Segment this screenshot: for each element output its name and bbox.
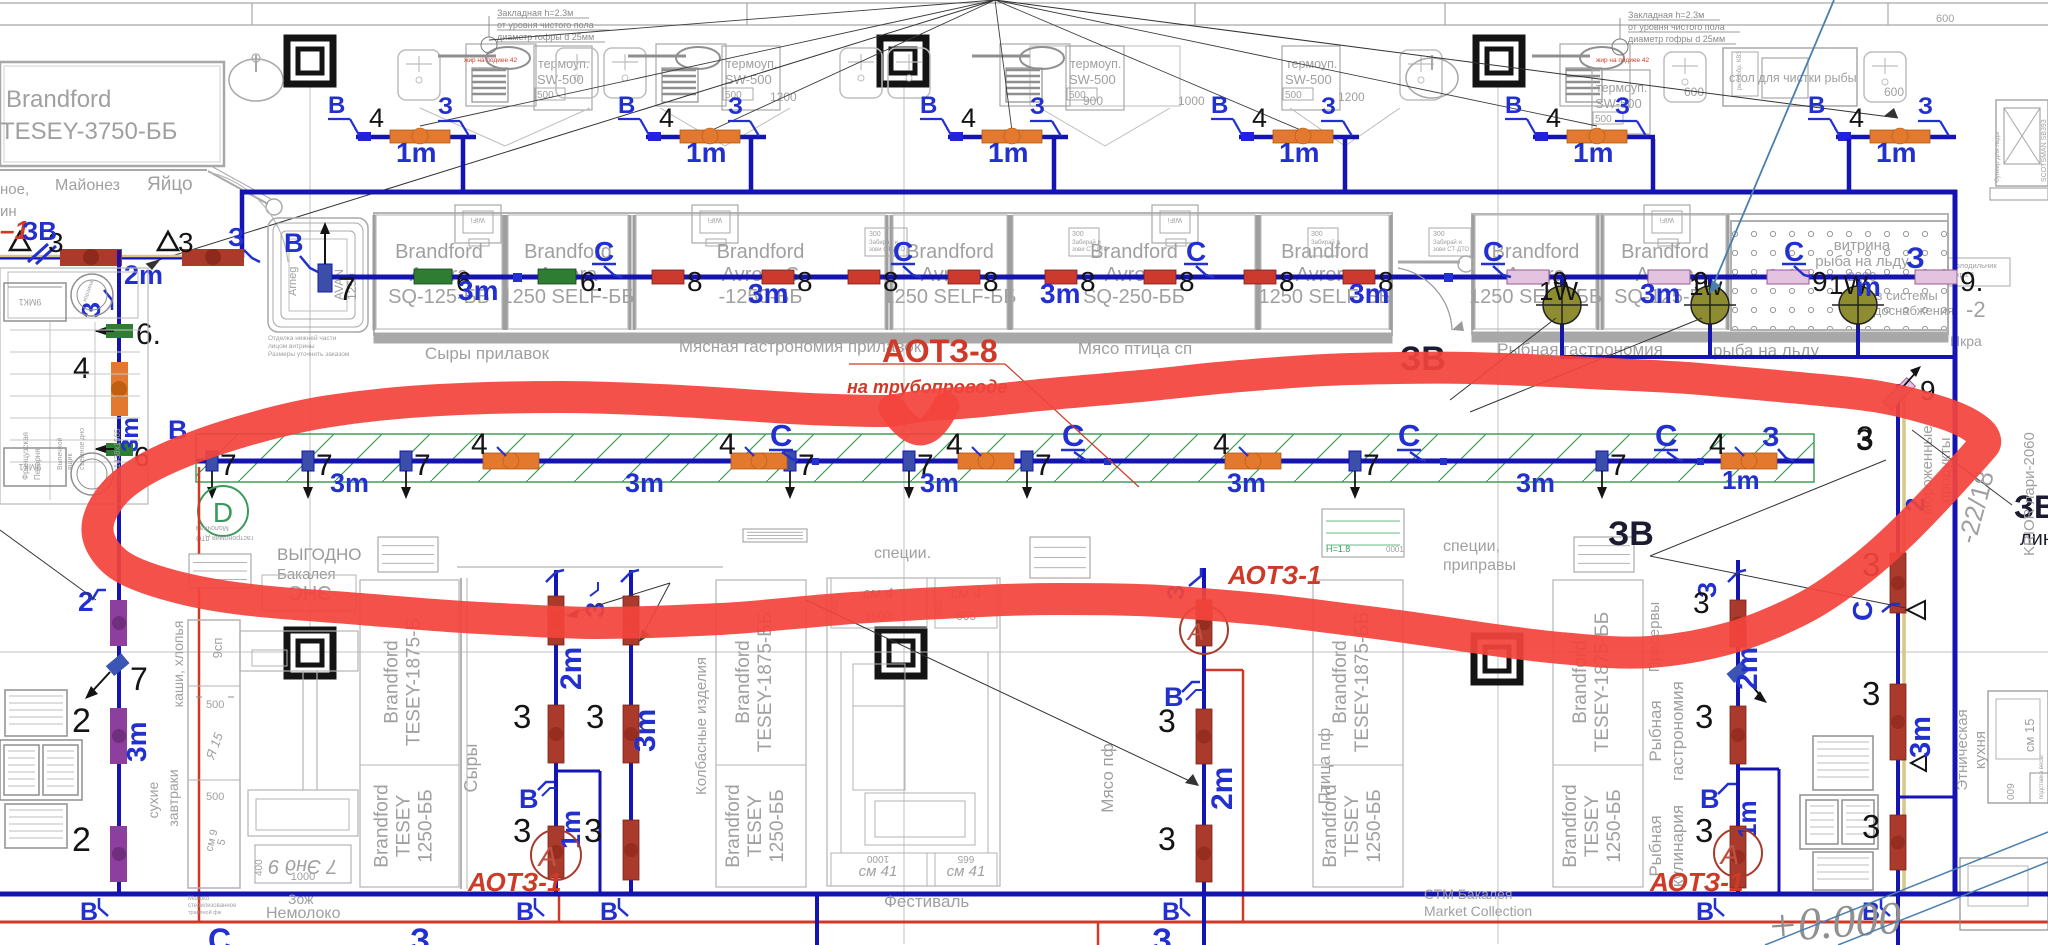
svg-text:диаметр гофры d 25мм: диаметр гофры d 25мм xyxy=(497,32,594,42)
svg-text:каши, хлопья: каши, хлопья xyxy=(170,621,186,708)
svg-text:см 41: см 41 xyxy=(859,863,898,880)
svg-text:3: 3 xyxy=(584,812,602,849)
svg-text:З: З xyxy=(1762,421,1780,452)
svg-text:1000: 1000 xyxy=(1178,94,1205,108)
svg-text:300: 300 xyxy=(1433,231,1445,238)
svg-text:8: 8 xyxy=(687,266,703,297)
svg-text:лицом витрины: лицом витрины xyxy=(268,343,315,350)
svg-text:009: 009 xyxy=(2006,783,2017,800)
svg-text:7: 7 xyxy=(1610,449,1627,482)
svg-text:Этническая: Этническая xyxy=(1954,709,1971,790)
svg-text:З: З xyxy=(1152,922,1172,945)
svg-text:TESEY: TESEY xyxy=(1342,795,1363,858)
svg-text:В: В xyxy=(1696,898,1714,926)
svg-text:А: А xyxy=(1719,839,1740,870)
svg-text:7: 7 xyxy=(1363,449,1380,482)
svg-text:1W: 1W xyxy=(1539,276,1578,306)
svg-text:400: 400 xyxy=(254,859,265,876)
svg-text:2m: 2m xyxy=(124,260,163,290)
svg-text:500: 500 xyxy=(1069,90,1086,101)
svg-text:З: З xyxy=(728,93,743,120)
svg-text:500: 500 xyxy=(206,699,224,711)
svg-text:ВЫГОДНО: ВЫГОДНО xyxy=(277,545,362,564)
svg-text:SW-500: SW-500 xyxy=(725,72,772,87)
svg-text:5: 5 xyxy=(215,838,228,847)
svg-text:TESEY: TESEY xyxy=(1582,795,1603,858)
svg-text:1m: 1m xyxy=(1876,137,1916,168)
svg-text:З: З xyxy=(1321,93,1336,120)
svg-text:Brandford: Brandford xyxy=(906,241,994,263)
svg-text:TESEY-3750-ББ: TESEY-3750-ББ xyxy=(0,118,177,145)
svg-text:3: 3 xyxy=(1158,821,1176,857)
svg-text:D: D xyxy=(213,497,233,528)
svg-text:диаметр гофры d 25мм: диаметр гофры d 25мм xyxy=(1628,34,1725,44)
svg-text:2m: 2m xyxy=(1206,767,1239,810)
svg-text:SQ-250-ББ: SQ-250-ББ xyxy=(1083,286,1185,308)
svg-text:TESEY-1875-ББ: TESEY-1875-ББ xyxy=(755,612,776,752)
svg-text:З: З xyxy=(1918,93,1933,120)
svg-text:3m: 3m xyxy=(1516,468,1555,498)
svg-text:Я 15: Я 15 xyxy=(202,730,226,762)
svg-text:термоуп.: термоуп. xyxy=(726,57,777,71)
svg-text:съемное дно: съемное дно xyxy=(79,428,86,470)
svg-text:Забирай и: Забирай и xyxy=(1433,239,1462,246)
svg-text:корзина: корзина xyxy=(82,279,95,302)
svg-text:С: С xyxy=(893,236,913,267)
svg-text:СТМ Бакалея: СТМ Бакалея xyxy=(1424,886,1512,902)
svg-text:3: 3 xyxy=(178,227,194,258)
svg-text:1m: 1m xyxy=(1573,137,1613,168)
svg-text:SW-500: SW-500 xyxy=(537,72,584,87)
svg-text:Сыры прилавок: Сыры прилавок xyxy=(425,344,550,363)
svg-text:Сыры: Сыры xyxy=(461,744,481,793)
svg-text:1m: 1m xyxy=(1722,465,1760,495)
svg-text:9сп: 9сп xyxy=(210,638,225,659)
svg-text:В: В xyxy=(1808,92,1825,119)
svg-text:В: В xyxy=(618,92,635,119)
svg-text:3: 3 xyxy=(586,698,604,735)
svg-text:4: 4 xyxy=(961,103,976,133)
svg-text:4: 4 xyxy=(1546,103,1561,133)
svg-text:В: В xyxy=(1700,784,1720,814)
svg-text:3: 3 xyxy=(1695,698,1713,735)
svg-text:З: З xyxy=(228,222,244,252)
svg-text:3: 3 xyxy=(1695,812,1713,849)
svg-text:Мясо птица сп: Мясо птица сп xyxy=(1078,339,1192,358)
svg-text:1m: 1m xyxy=(686,137,726,168)
svg-text:WiFi: WiFi xyxy=(1168,216,1182,223)
svg-text:С: С xyxy=(1483,236,1503,267)
svg-text:ное,: ное, xyxy=(0,181,29,198)
svg-text:500: 500 xyxy=(1595,114,1612,125)
svg-text:2m: 2m xyxy=(555,647,588,690)
svg-text:1000: 1000 xyxy=(866,853,889,864)
svg-text:3m: 3m xyxy=(1227,468,1266,498)
svg-text:4: 4 xyxy=(369,103,384,133)
svg-text:В: В xyxy=(519,784,539,814)
svg-text:В: В xyxy=(80,898,98,926)
svg-text:Brandford: Brandford xyxy=(395,241,483,263)
svg-text:Забирай и: Забирай и xyxy=(1311,239,1340,246)
svg-text:Фестиваль: Фестиваль xyxy=(884,892,969,911)
svg-text:7: 7 xyxy=(338,271,356,307)
svg-text:300: 300 xyxy=(1072,231,1084,238)
svg-text:см 15: см 15 xyxy=(2022,718,2037,752)
svg-text:Закладная h=2.3м: Закладная h=2.3м xyxy=(1628,10,1704,20)
svg-text:500: 500 xyxy=(206,791,224,803)
svg-text:7: 7 xyxy=(798,449,815,482)
svg-text:стол для чистки рыбы: стол для чистки рыбы xyxy=(1729,71,1857,85)
svg-text:Молоко: Молоко xyxy=(188,896,210,902)
svg-text:В: В xyxy=(920,92,937,119)
svg-text:4: 4 xyxy=(73,352,90,385)
svg-text:травяной фж: травяной фж xyxy=(188,909,222,916)
svg-text:В: В xyxy=(328,92,345,119)
svg-text:2m: 2m xyxy=(1731,647,1764,690)
svg-text:Arneg: Arneg xyxy=(287,267,299,296)
svg-text:300: 300 xyxy=(869,231,881,238)
svg-text:3m: 3m xyxy=(458,275,498,306)
svg-text:Market Collection: Market Collection xyxy=(1424,903,1532,919)
svg-text:8: 8 xyxy=(883,266,899,297)
svg-text:от уровня чистого пола: от уровня чистого пола xyxy=(1628,22,1725,32)
svg-text:1250-ББ: 1250-ББ xyxy=(767,789,788,863)
svg-text:С: С xyxy=(208,922,231,945)
svg-text:Brandford: Brandford xyxy=(723,784,744,867)
svg-text:1m: 1m xyxy=(1279,137,1319,168)
svg-text:TESEY-1875-Б: TESEY-1875-Б xyxy=(404,618,425,746)
svg-text:гастрономия ДТО: гастрономия ДТО xyxy=(195,534,253,541)
svg-text:З: З xyxy=(1615,93,1630,120)
svg-text:Рыбная: Рыбная xyxy=(1646,700,1665,761)
svg-text:В: В xyxy=(600,898,618,926)
svg-text:9МК1: 9МК1 xyxy=(19,462,42,472)
svg-text:кухня: кухня xyxy=(1972,731,1989,769)
svg-text:сухие: сухие xyxy=(145,781,161,818)
svg-text:8: 8 xyxy=(1279,266,1295,297)
svg-text:WiFi: WiFi xyxy=(1660,216,1674,223)
svg-text:ЗВ: ЗВ xyxy=(1608,515,1654,553)
svg-text:витрина: витрина xyxy=(1834,237,1891,254)
svg-text:зови СТ-ДТО: зови СТ-ДТО xyxy=(1433,247,1469,253)
svg-text:В: В xyxy=(1505,92,1522,119)
svg-text:H=1.8: H=1.8 xyxy=(1326,544,1350,554)
svg-text:гастрономия: гастрономия xyxy=(1668,681,1687,781)
svg-text:6.: 6. xyxy=(580,266,603,297)
svg-text:TESEY: TESEY xyxy=(745,795,766,858)
svg-text:специи,: специи, xyxy=(1443,538,1500,555)
svg-text:8: 8 xyxy=(1179,266,1195,297)
svg-text:4: 4 xyxy=(1252,103,1267,133)
svg-text:WiFi: WiFi xyxy=(708,216,722,223)
svg-text:500: 500 xyxy=(1285,90,1302,101)
svg-text:3: 3 xyxy=(1856,420,1874,456)
svg-text:рыба на льду: рыба на льду xyxy=(1815,253,1909,270)
svg-text:З: З xyxy=(1030,93,1045,120)
svg-text:В: В xyxy=(284,228,304,258)
svg-text:SW-500: SW-500 xyxy=(1069,72,1116,87)
svg-text:3m: 3m xyxy=(625,468,664,498)
svg-text:2: 2 xyxy=(72,821,91,859)
svg-text:TESEY: TESEY xyxy=(394,795,415,858)
svg-text:3m: 3m xyxy=(1905,716,1937,758)
svg-text:С: С xyxy=(1062,418,1084,453)
svg-text:Brandford: Brandford xyxy=(733,640,754,723)
svg-text:Brandford: Brandford xyxy=(717,241,805,263)
svg-text:Brandford: Brandford xyxy=(382,640,403,723)
svg-text:Brandford: Brandford xyxy=(1330,640,1351,723)
svg-text:SCOTSMAN SB393: SCOTSMAN SB393 xyxy=(2041,119,2048,182)
svg-text:термоуп.: термоуп. xyxy=(1286,57,1337,71)
svg-text:3m: 3m xyxy=(121,722,152,762)
svg-text:3: 3 xyxy=(1862,808,1880,845)
svg-text:4: 4 xyxy=(471,428,488,461)
svg-text:1m: 1m xyxy=(1732,800,1762,838)
svg-text:1250 SELF-ББ: 1250 SELF-ББ xyxy=(502,286,635,308)
svg-text:бункер для льда: бункер для льда xyxy=(1993,132,2001,182)
svg-text:Забирай и: Забирай и xyxy=(1072,239,1101,246)
svg-text:В: В xyxy=(516,898,534,926)
svg-text:Размеры уточнить заказом: Размеры уточнить заказом xyxy=(268,351,350,358)
svg-text:3m: 3m xyxy=(330,468,369,498)
svg-text:3m: 3m xyxy=(1040,278,1080,309)
svg-text:Птица пф: Птица пф xyxy=(1315,728,1334,805)
svg-text:3m: 3m xyxy=(748,278,788,309)
svg-text:Молочная: Молочная xyxy=(196,524,229,531)
svg-text:2: 2 xyxy=(78,586,94,617)
svg-text:7: 7 xyxy=(130,661,148,697)
svg-text:ЗВ: ЗВ xyxy=(22,216,57,246)
svg-text:8: 8 xyxy=(1080,266,1096,297)
svg-text:Brandford: Brandford xyxy=(6,86,111,113)
svg-text:SW-500: SW-500 xyxy=(1285,72,1332,87)
svg-text:С: С xyxy=(594,236,614,267)
svg-text:ящик: ящик xyxy=(67,453,74,470)
svg-text:см 41: см 41 xyxy=(947,863,986,880)
svg-text:665: 665 xyxy=(957,853,974,864)
svg-text:Майонез: Майонез xyxy=(55,177,120,194)
svg-text:1250-ББ: 1250-ББ xyxy=(1364,789,1385,863)
svg-text:жир на подиее 42: жир на подиее 42 xyxy=(1596,57,1649,64)
svg-text:3: 3 xyxy=(1693,587,1710,620)
svg-text:С: С xyxy=(1186,236,1206,267)
svg-text:1m: 1m xyxy=(396,137,436,168)
svg-text:3m: 3m xyxy=(920,468,959,498)
svg-text:600: 600 xyxy=(1936,13,1954,25)
svg-text:Немолоко: Немолоко xyxy=(266,905,341,922)
svg-text:С: С xyxy=(1847,601,1878,621)
svg-text:завтраки: завтраки xyxy=(165,769,181,826)
svg-text:рыбообр. КВЗ: рыбообр. КВЗ xyxy=(1737,51,1743,90)
svg-text:приправы: приправы xyxy=(1443,557,1516,574)
svg-text:жир на подиее 42: жир на подиее 42 xyxy=(464,57,517,64)
svg-text:4: 4 xyxy=(1709,428,1726,461)
svg-text:1000: 1000 xyxy=(291,871,315,883)
svg-text:m: m xyxy=(1856,271,1881,302)
svg-text:7: 7 xyxy=(414,449,431,482)
svg-text:0001: 0001 xyxy=(1386,545,1404,554)
svg-text:WiFi: WiFi xyxy=(471,216,485,223)
svg-text:А: А xyxy=(1186,619,1204,646)
svg-text:3: 3 xyxy=(513,698,531,735)
svg-text:3: 3 xyxy=(1158,703,1176,739)
svg-text:АОТЗ-1: АОТЗ-1 xyxy=(1227,560,1321,590)
svg-text:Мясо пф: Мясо пф xyxy=(1098,743,1117,812)
svg-text:600: 600 xyxy=(1884,85,1904,99)
svg-text:4: 4 xyxy=(946,428,963,461)
svg-text:Brandford: Brandford xyxy=(1621,241,1709,263)
svg-text:1m: 1m xyxy=(988,137,1028,168)
svg-text:С: С xyxy=(1655,418,1677,453)
svg-text:3m: 3m xyxy=(1640,278,1680,309)
svg-text:Закладная h=2.3м: Закладная h=2.3м xyxy=(497,8,573,18)
svg-text:Яйцо: Яйцо xyxy=(147,174,193,195)
svg-text:В: В xyxy=(1211,92,1228,119)
svg-text:4: 4 xyxy=(719,428,736,461)
svg-text:С: С xyxy=(1784,236,1804,267)
svg-text:300: 300 xyxy=(1311,231,1323,238)
svg-text:3: 3 xyxy=(513,812,531,849)
svg-text:Brandford: Brandford xyxy=(1492,241,1580,263)
svg-text:подставка весы: подставка весы xyxy=(2039,755,2045,799)
svg-text:Выпечной: Выпечной xyxy=(56,437,64,470)
svg-text:Колбасные изделия: Колбасные изделия xyxy=(693,657,710,795)
svg-text:1250-ББ: 1250-ББ xyxy=(416,789,437,863)
svg-text:8: 8 xyxy=(983,266,999,297)
svg-text:специи.: специи. xyxy=(874,545,931,562)
svg-text:1250-ББ: 1250-ББ xyxy=(1604,789,1625,863)
svg-text:Brandford: Brandford xyxy=(1560,784,1581,867)
svg-text:З: З xyxy=(438,93,453,120)
svg-text:-2: -2 xyxy=(1966,297,1986,322)
svg-text:термоуп.: термоуп. xyxy=(538,57,589,71)
svg-text:З: З xyxy=(1906,242,1925,275)
svg-text:4: 4 xyxy=(659,103,674,133)
svg-text:3m: 3m xyxy=(1349,278,1389,309)
svg-text:4: 4 xyxy=(1213,428,1230,461)
svg-text:Отделка нижней части: Отделка нижней части xyxy=(268,334,337,342)
svg-text:С: С xyxy=(1398,418,1420,453)
svg-text:Brandford: Brandford xyxy=(372,784,393,867)
svg-text:термоуп.: термоуп. xyxy=(1070,57,1121,71)
svg-text:9МК1: 9МК1 xyxy=(19,297,42,307)
svg-text:9: 9 xyxy=(1812,266,1828,297)
svg-text:2: 2 xyxy=(72,702,91,740)
svg-text:7: 7 xyxy=(1035,449,1052,482)
svg-text:1200: 1200 xyxy=(1338,90,1365,104)
svg-text:9.: 9. xyxy=(1960,266,1983,297)
svg-text:3m: 3m xyxy=(629,709,662,752)
svg-text:от уровня чистого пола: от уровня чистого пола xyxy=(497,20,594,30)
svg-text:TESEY-1875-ББ: TESEY-1875-ББ xyxy=(1592,612,1613,752)
svg-text:KRIOR лари-2060: KRIOR лари-2060 xyxy=(2021,432,2038,556)
svg-text:3: 3 xyxy=(1862,675,1880,712)
svg-text:4: 4 xyxy=(1849,103,1864,133)
svg-text:З: З xyxy=(410,922,430,945)
svg-text:8: 8 xyxy=(797,266,813,297)
svg-text:зови СТ-ДТО: зови СТ-ДТО xyxy=(1072,247,1108,253)
svg-text:стерилизованное: стерилизованное xyxy=(188,903,237,909)
